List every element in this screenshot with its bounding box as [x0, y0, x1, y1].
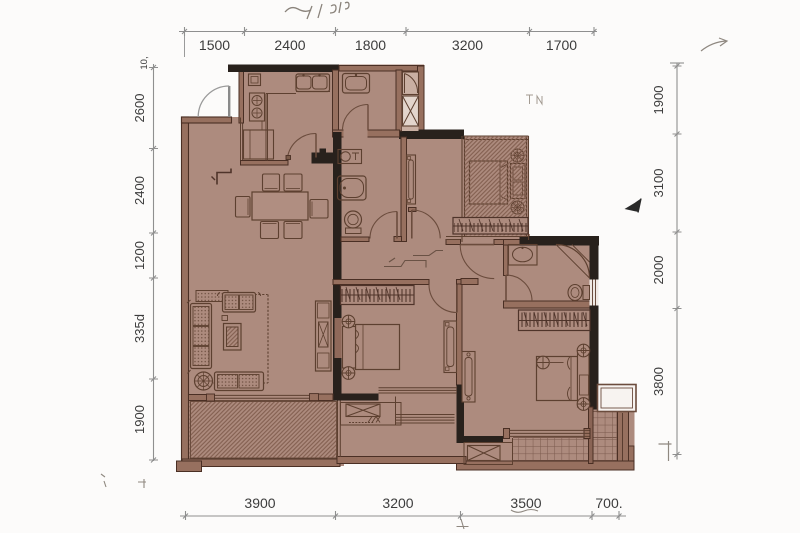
- svg-text:3100: 3100: [651, 169, 666, 198]
- svg-text:3900: 3900: [244, 495, 275, 511]
- svg-text:1800: 1800: [355, 37, 386, 53]
- svg-text:700.: 700.: [595, 495, 622, 511]
- svg-text:1900: 1900: [651, 86, 666, 115]
- svg-text:2400: 2400: [132, 176, 147, 205]
- svg-text:1200: 1200: [132, 241, 147, 270]
- svg-text:335d: 335d: [132, 314, 147, 343]
- svg-text:3500: 3500: [510, 495, 541, 511]
- svg-text:3200: 3200: [382, 495, 413, 511]
- svg-text:3200: 3200: [452, 37, 483, 53]
- svg-text:2400: 2400: [274, 37, 305, 53]
- svg-text:10,: 10,: [139, 56, 150, 69]
- svg-text:1500: 1500: [199, 37, 230, 53]
- svg-text:1700: 1700: [546, 37, 577, 53]
- svg-text:1900: 1900: [132, 405, 147, 434]
- svg-text:2600: 2600: [132, 94, 147, 123]
- svg-text:2000: 2000: [651, 256, 666, 285]
- svg-text:3800: 3800: [651, 367, 666, 396]
